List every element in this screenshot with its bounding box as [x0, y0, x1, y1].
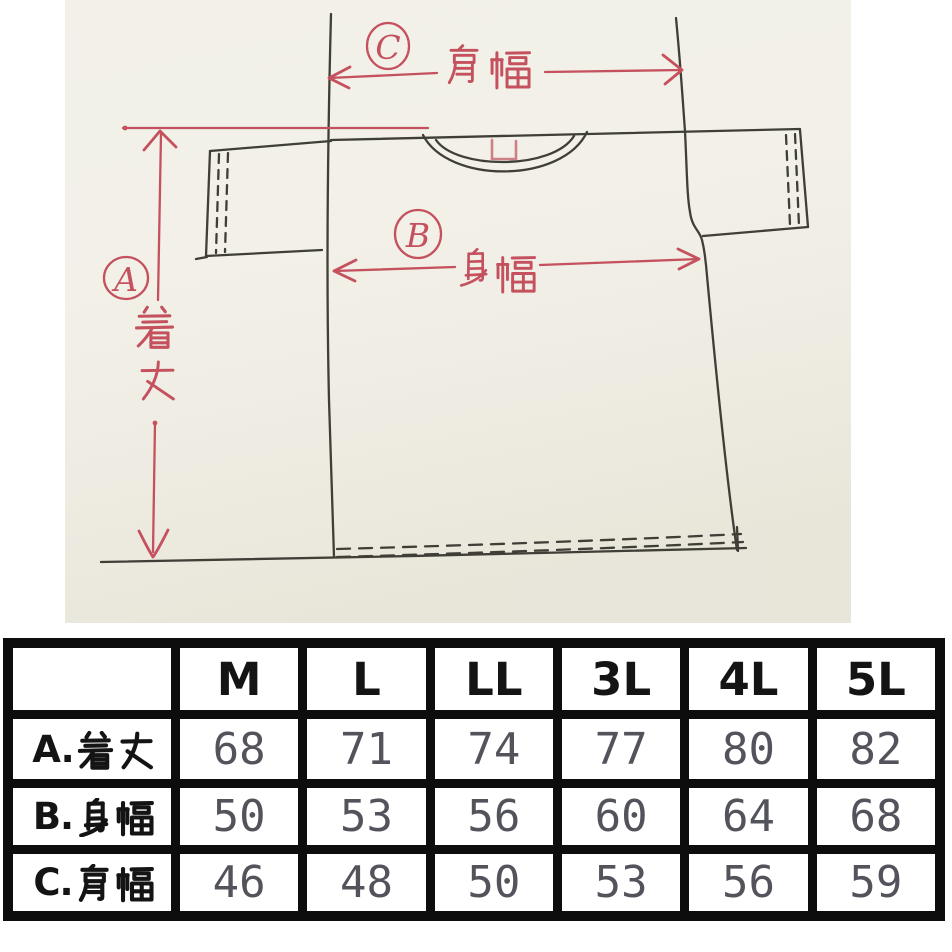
value-cell: 77	[562, 719, 680, 779]
column-header-m: M	[180, 648, 298, 710]
size-table: M L LL 3L 4L 5L A.着丈 A. 68 71 74 77 80 8…	[3, 638, 945, 921]
value-cell: 46	[180, 854, 298, 911]
value-cell: 50	[180, 788, 298, 845]
value-cell: 68	[180, 719, 298, 779]
row-label-length: A.着丈 A.	[13, 719, 171, 779]
kanji-take-glyph	[117, 731, 156, 770]
kanji-haba-glyph	[116, 798, 155, 837]
row-prefix: C.	[33, 861, 72, 904]
value-cell: 64	[689, 788, 807, 845]
value-cell: 80	[689, 719, 807, 779]
value-cell: 60	[562, 788, 680, 845]
value-cell: 82	[817, 719, 935, 779]
size-chart-image: A B C M L LL 3L 4L 5L A.着丈 A. 68 71 74 7…	[0, 0, 952, 952]
row-prefix: A.	[32, 728, 73, 771]
annotation-letter-a: A	[111, 260, 138, 299]
column-header-ll: LL	[435, 648, 553, 710]
pen-dot-1	[123, 126, 128, 131]
value-cell: 68	[817, 788, 935, 845]
kanji-kata-glyph	[75, 864, 114, 903]
annotation-letter-b: B	[405, 216, 430, 255]
value-cell: 56	[435, 788, 553, 845]
value-cell: 50	[435, 854, 553, 911]
hem-corner-tick	[737, 527, 738, 551]
column-header-5l: 5L	[817, 648, 935, 710]
column-header-4l: 4L	[689, 648, 807, 710]
corner-cell	[13, 648, 171, 710]
value-cell: 53	[307, 788, 425, 845]
value-cell: 53	[562, 854, 680, 911]
column-header-l: L	[307, 648, 425, 710]
row-label-shoulder-width: C.肩幅 C.	[13, 854, 171, 911]
kanji-ki-glyph	[76, 731, 115, 770]
value-cell: 71	[307, 719, 425, 779]
column-header-3l: 3L	[562, 648, 680, 710]
kanji-mi-glyph	[75, 798, 114, 837]
value-cell: 59	[817, 854, 935, 911]
value-cell: 56	[689, 854, 807, 911]
tshirt-measurement-sketch: A B C	[0, 0, 952, 625]
sketch-photo: A B C	[0, 0, 952, 625]
value-cell: 48	[307, 854, 425, 911]
row-label-body-width: B.身幅 B.	[13, 788, 171, 845]
annotation-letter-c: C	[375, 28, 400, 67]
pen-dot-2	[153, 421, 158, 426]
kanji-haba-glyph	[116, 864, 155, 903]
row-prefix: B.	[33, 795, 73, 838]
value-cell: 74	[435, 719, 553, 779]
